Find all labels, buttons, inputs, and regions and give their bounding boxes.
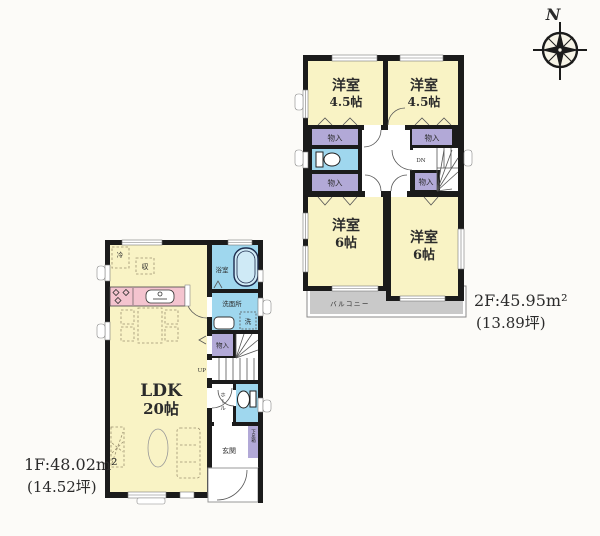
bathtub-icon (234, 248, 258, 286)
room-label-west6b-size: 6帖 (413, 247, 435, 263)
compass-rose: N (533, 5, 587, 80)
room-ldk (110, 245, 207, 492)
entrance-porch (208, 468, 263, 503)
floor1-area-line1: 1F:48.02m² (24, 455, 118, 474)
floor2-area-line1: 2F:45.95m² (474, 291, 568, 310)
shutter-box (464, 150, 472, 166)
room-west-6-b (391, 197, 458, 296)
closet-label: 物入 (328, 133, 343, 143)
room-label-west6a-name: 洋室 (332, 217, 360, 234)
fridge-label: 冷 (117, 250, 124, 259)
toilet-icon-1f (238, 391, 257, 408)
sink-icon (146, 290, 174, 303)
washer-label: 洗 (245, 317, 252, 326)
washbasin-icon (214, 317, 234, 329)
bath-label: 浴室 (216, 265, 230, 274)
floor-plan-page: N (0, 0, 600, 536)
shutter-box (137, 498, 165, 504)
room-label-west6a-size: 6帖 (335, 235, 357, 251)
shutter-box (295, 150, 303, 166)
room-label-west45a-name: 洋室 (332, 77, 360, 94)
washroom-label: 洗面所 (222, 299, 242, 308)
entrance-label: 玄関 (222, 446, 236, 455)
stairs-1f-floor-lower (212, 358, 236, 380)
stairs-down-label: DN (416, 158, 425, 164)
stairs-up-label: UP (198, 368, 207, 374)
shutter-box (263, 300, 271, 314)
floor-2-plan: 洋室 4.5帖 洋室 4.5帖 物入 物入 物入 物入 DN 洋室 6帖 洋室 … (295, 55, 568, 332)
toilet-icon-2f (316, 152, 340, 167)
room-label-west45b-name: 洋室 (410, 77, 438, 94)
shutter-box (263, 400, 271, 412)
shoe-cabinet-label: 下足箱 (251, 429, 256, 444)
closet-label: 物入 (425, 133, 440, 143)
floor-1-plan: 冷 収 浴室 洗面所 洗 物入 UP ホール 玄関 下足箱 LDK 20帖 1F… (24, 240, 271, 504)
closet-label: 物入 (328, 178, 343, 188)
hall-2f (362, 130, 410, 191)
balcony-label: バルコニー (330, 300, 370, 308)
room-label-west45a-size: 4.5帖 (330, 94, 363, 109)
ldk-label: LDK (140, 381, 183, 401)
shutter-box (97, 324, 105, 338)
storage-label: 収 (142, 263, 149, 271)
floor-plan-drawing: N (0, 0, 600, 536)
kitchen-counter (110, 285, 190, 306)
room-label-west6b-name: 洋室 (410, 229, 438, 246)
shutter-box (295, 94, 303, 110)
hall-label: ホール (219, 392, 226, 412)
room-label-west45b-size: 4.5帖 (408, 94, 441, 109)
floor1-area-line2: (14.52坪) (27, 478, 97, 496)
shutter-box (97, 266, 105, 280)
closet-label: 物入 (216, 341, 230, 350)
closet-label: 物入 (419, 177, 434, 187)
ldk-size-label: 20帖 (143, 400, 179, 418)
floor2-area-line2: (13.89坪) (476, 314, 546, 332)
compass-north-label: N (545, 5, 562, 24)
